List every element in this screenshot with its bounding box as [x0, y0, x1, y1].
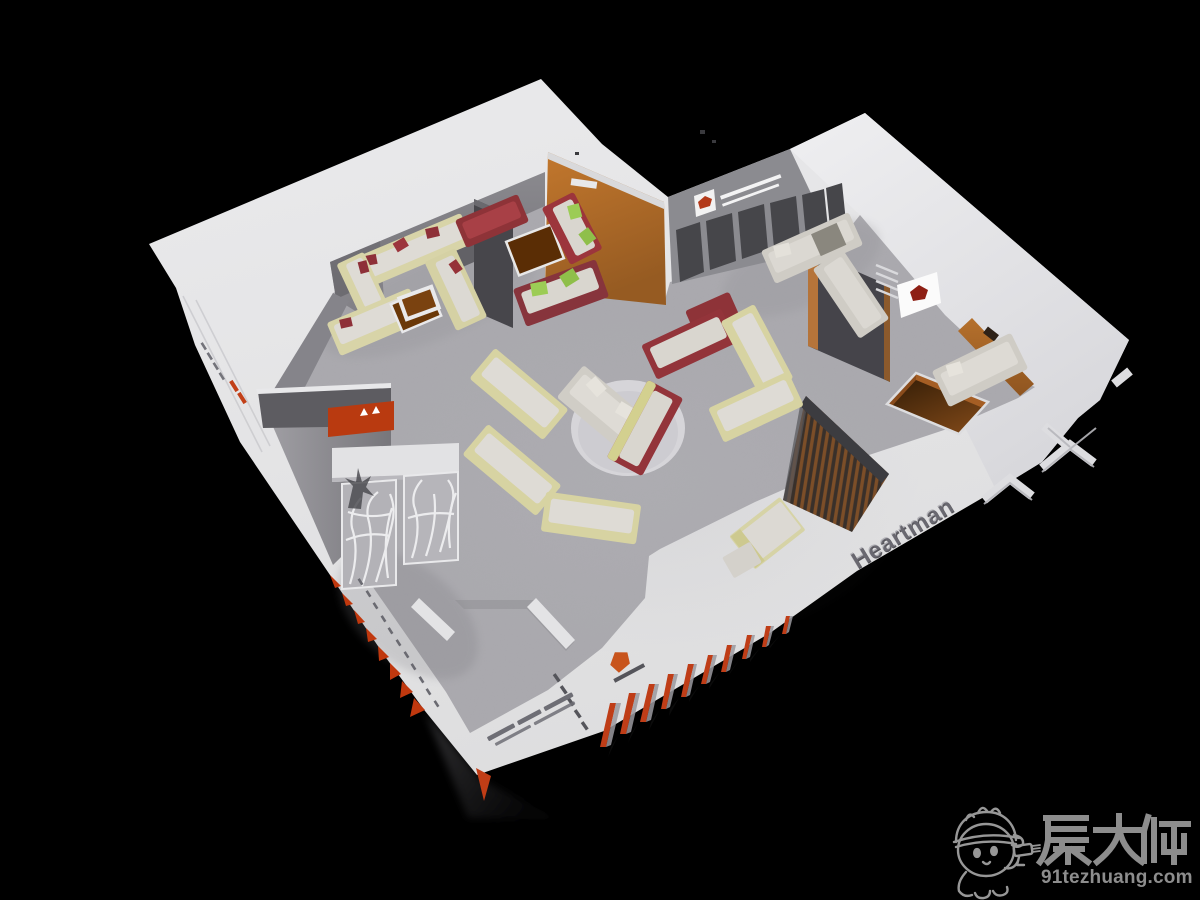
svg-text:91tezhuang.com: 91tezhuang.com — [1041, 867, 1193, 888]
